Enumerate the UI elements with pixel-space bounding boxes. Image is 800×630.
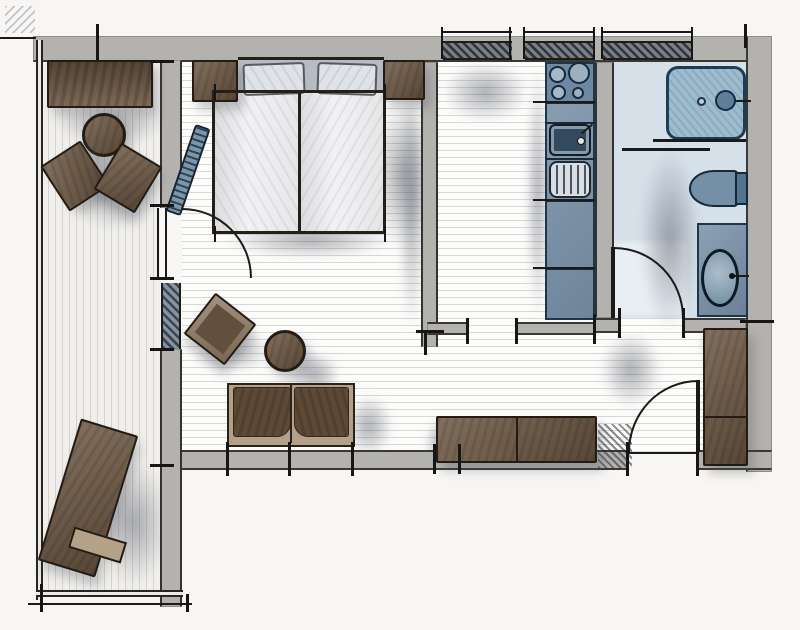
- dimension-tick: [384, 226, 386, 242]
- dimension-tick: [744, 24, 747, 48]
- balcony-bench: [47, 60, 153, 108]
- kitchen-bottom-wall-a: [427, 322, 468, 335]
- dimension-tick: [515, 318, 518, 344]
- dimension-tick: [618, 308, 621, 338]
- floor-plan-canvas: [0, 0, 800, 630]
- stove-burner-1: [549, 66, 566, 83]
- dimension-tick: [384, 84, 386, 100]
- top-wall-window-3: [603, 41, 693, 60]
- dimension-tick: [696, 442, 699, 476]
- dimension-tick: [416, 330, 444, 333]
- stove-burner-4: [572, 87, 584, 99]
- drainboard-rib-5: [584, 165, 586, 194]
- kitchen-left-wall: [421, 62, 438, 347]
- basin-faucet: [729, 273, 735, 279]
- stove-burner-2: [568, 62, 590, 84]
- wardrobe-divider: [704, 416, 747, 418]
- wardrobe: [703, 328, 748, 466]
- left-wall-window: [161, 283, 181, 349]
- bath-bottom-wall-a: [595, 318, 620, 333]
- sofa-cushion-right: [294, 387, 349, 437]
- bathroom-door-panel: [611, 247, 615, 318]
- kitchen-bottom-wall-b: [515, 322, 595, 335]
- towel-rail: [622, 148, 710, 151]
- balcony-door-panel: [157, 208, 159, 278]
- top-wall-window-1: [443, 41, 512, 60]
- dimension-tick: [226, 442, 229, 476]
- toilet-tank: [735, 172, 748, 205]
- dimension-tick: [150, 277, 174, 280]
- dimension-tick: [150, 60, 174, 63]
- shower-partition: [653, 139, 746, 142]
- dimension-tick: [441, 27, 443, 59]
- dimension-tick: [509, 27, 511, 59]
- drainboard-rib-3: [570, 165, 572, 194]
- dimension-tick: [523, 27, 525, 59]
- shadow-kitchen-corner: [443, 62, 528, 122]
- toilet-bowl: [689, 170, 739, 207]
- counter-divider-3: [545, 158, 595, 160]
- sofa-center-line: [290, 383, 292, 443]
- dimension-tick: [40, 584, 43, 612]
- dimension-tick: [150, 348, 174, 351]
- balcony-railing-bottom: [36, 590, 183, 597]
- sofa-cushion-left: [233, 387, 291, 437]
- dimension-tick: [214, 84, 216, 100]
- nightstand-right: [383, 60, 425, 100]
- left-wall-lower: [160, 349, 182, 607]
- entrance-threshold: [628, 452, 698, 454]
- stove-burner-3: [551, 85, 566, 100]
- drainboard-rib-4: [577, 165, 579, 194]
- balcony-door-panel-outer: [165, 208, 167, 278]
- dimension-tick: [593, 314, 596, 344]
- dimension-tick: [682, 308, 685, 338]
- window-3-outer-line: [603, 31, 693, 33]
- shower-head-arm: [735, 100, 751, 102]
- dimension-tick: [466, 318, 469, 344]
- dimension-tick: [186, 594, 189, 612]
- dimension-tick: [601, 27, 603, 59]
- dimension-tick: [214, 226, 216, 242]
- top-wall-left-extension: [0, 37, 36, 39]
- dimension-tick: [740, 320, 774, 323]
- sideboard-divider: [516, 417, 518, 462]
- balcony-railing-left: [36, 40, 43, 600]
- counter-ext-line-2: [533, 199, 595, 201]
- dimension-tick: [691, 27, 693, 59]
- dimension-tick: [351, 442, 354, 476]
- counter-ext-line-3: [533, 267, 595, 269]
- dimension-tick: [593, 27, 595, 59]
- shower-drain: [697, 97, 706, 106]
- dimension-tick: [150, 204, 174, 207]
- dimension-tick: [288, 442, 291, 476]
- bed-center-line: [298, 90, 301, 234]
- balcony-outer-line: [28, 603, 192, 605]
- window-2-outer-line: [525, 31, 595, 33]
- dimension-tick: [433, 444, 436, 474]
- top-wall-window-2: [525, 41, 595, 60]
- round-stool: [264, 330, 306, 372]
- dimension-tick: [96, 24, 99, 60]
- basin-faucet-arm: [734, 275, 749, 277]
- drainboard-rib-1: [556, 165, 558, 194]
- drainboard-rib-2: [563, 165, 565, 194]
- dimension-tick: [626, 442, 629, 476]
- shower-head: [715, 90, 736, 111]
- pencil-strokes: [5, 6, 35, 33]
- window-1-outer-line: [443, 31, 512, 33]
- counter-ext-line-1: [533, 101, 595, 103]
- dimension-tick: [150, 464, 174, 467]
- dimension-tick: [458, 444, 461, 474]
- dimension-tick: [424, 333, 427, 355]
- sink-faucet: [577, 137, 585, 145]
